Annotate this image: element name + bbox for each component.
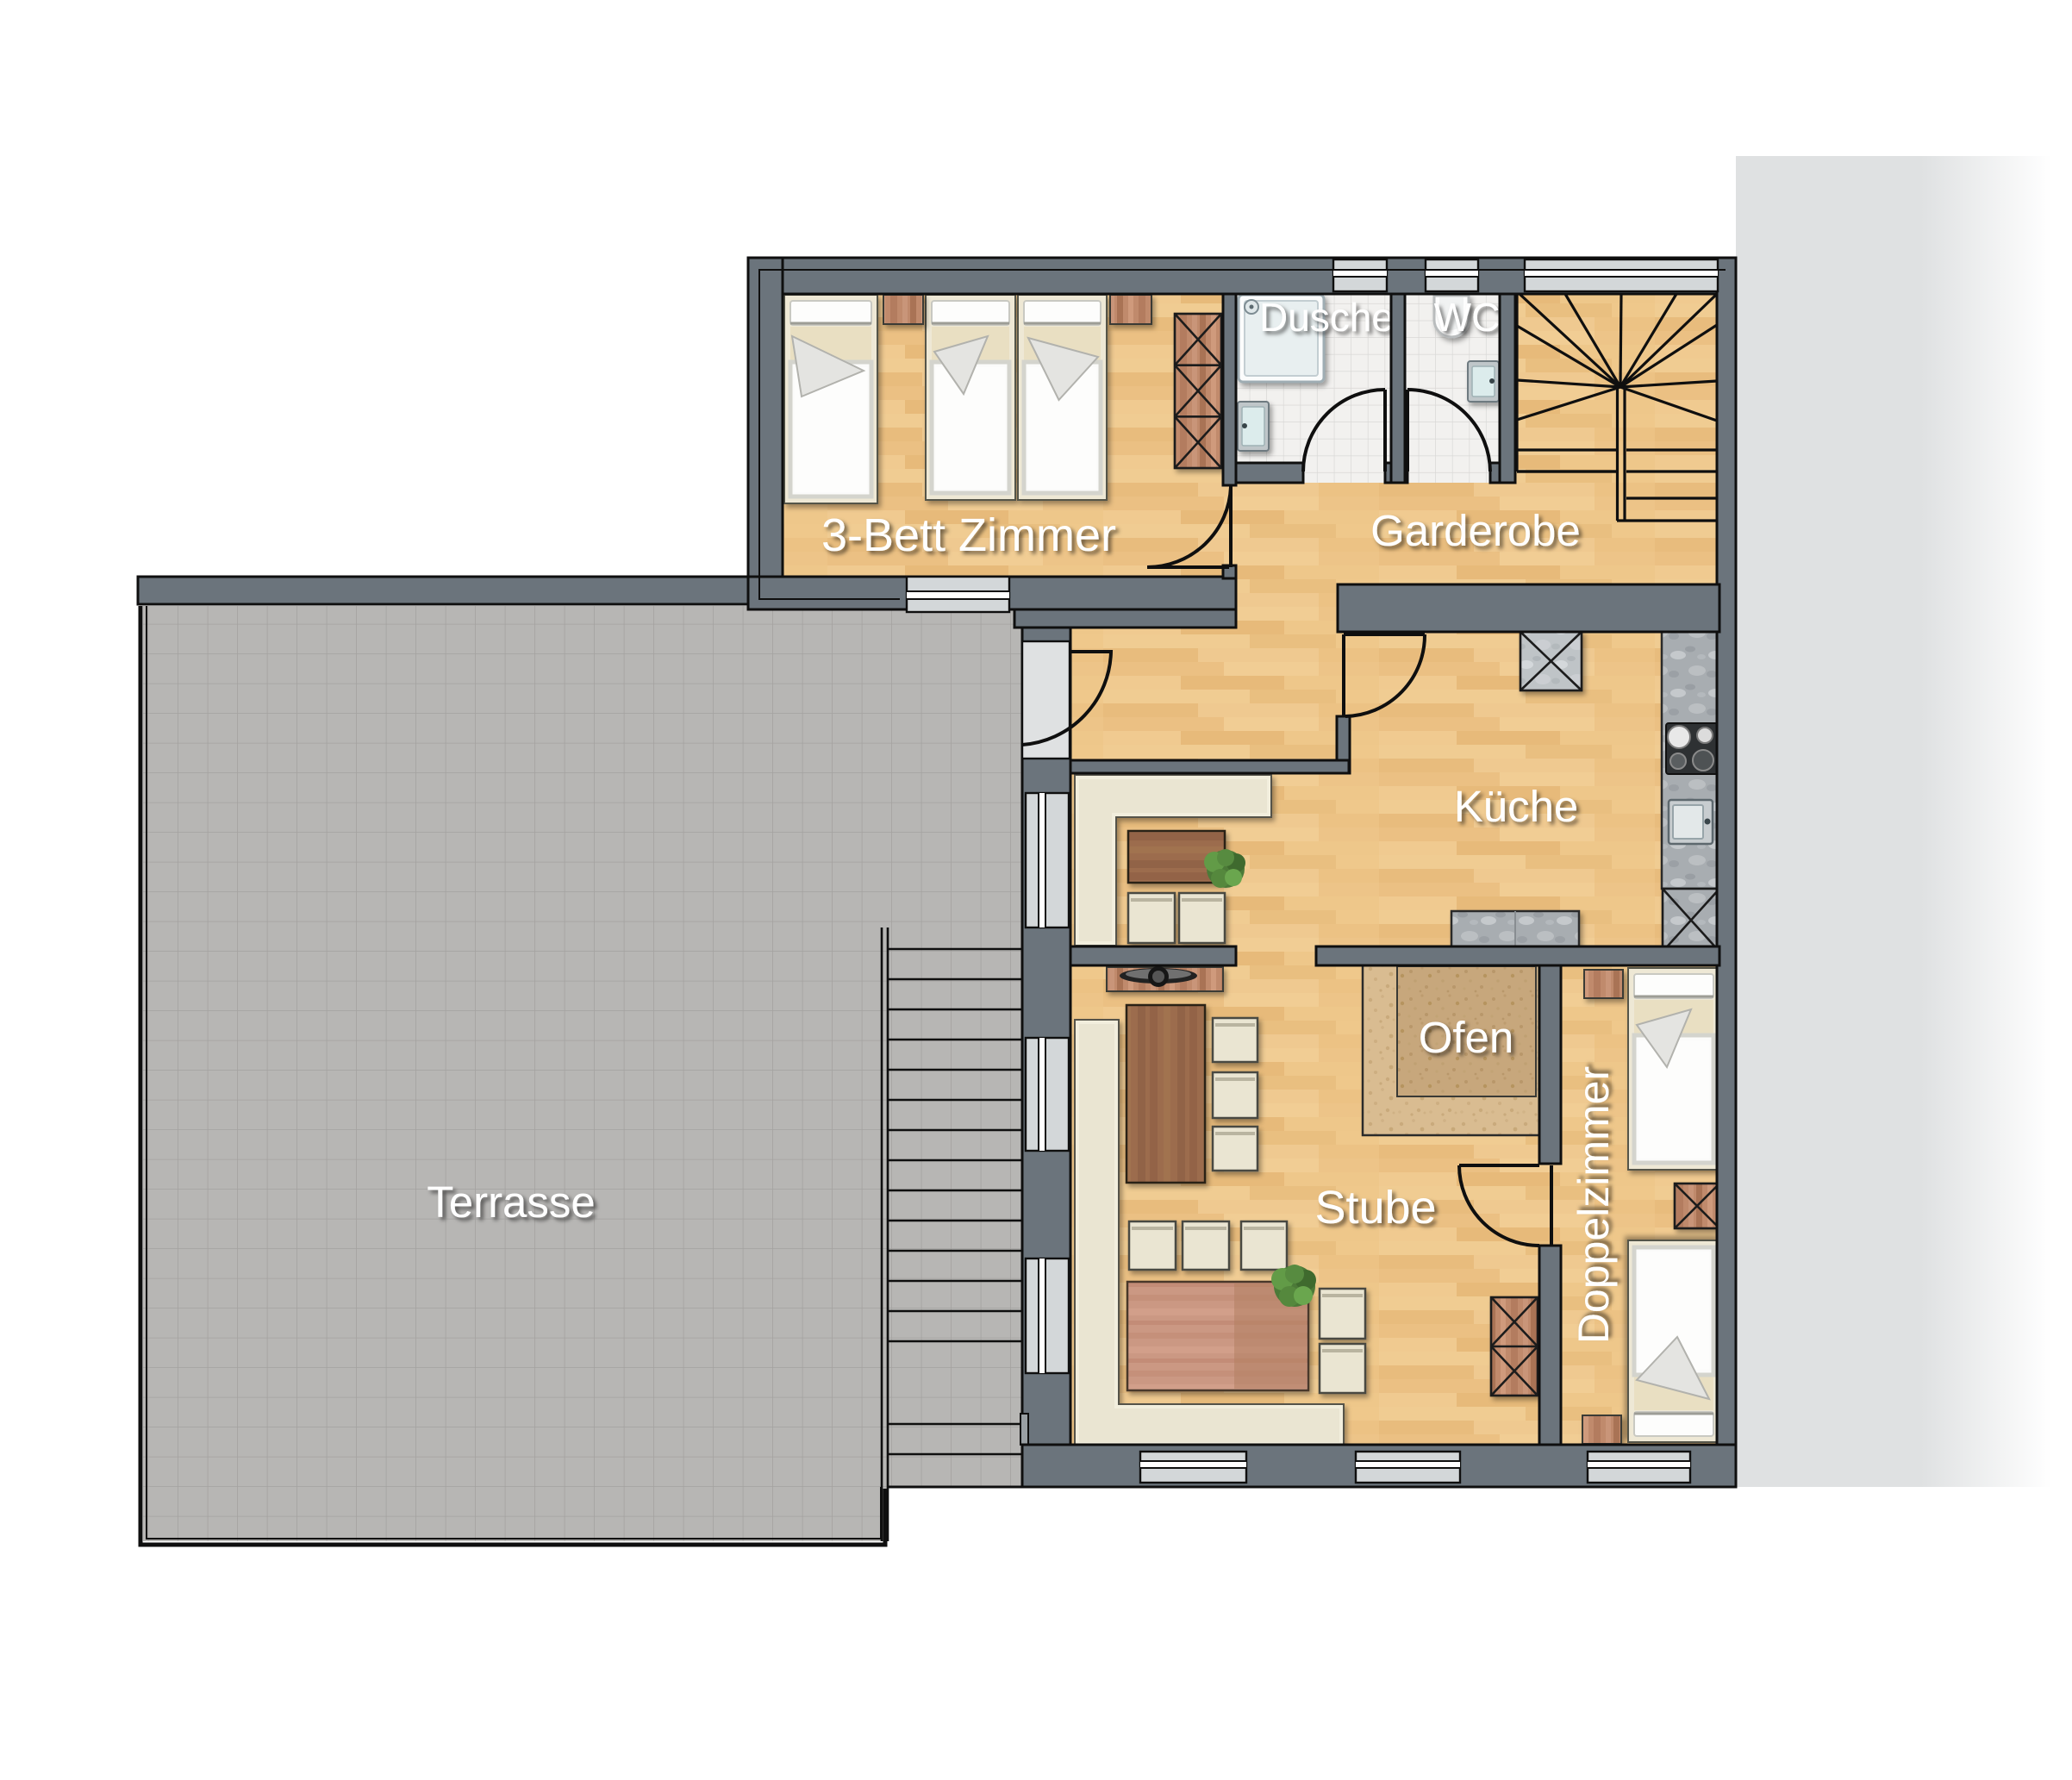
svg-text:Dusche: Dusche [1259,295,1394,340]
svg-text:3-Bett Zimmer: 3-Bett Zimmer [821,509,1116,561]
svg-text:Küche: Küche [1454,782,1579,831]
svg-text:Stube: Stube [1314,1182,1436,1234]
svg-text:Garderobe: Garderobe [1370,506,1581,555]
svg-text:Doppelzimmer: Doppelzimmer [1570,1066,1618,1344]
svg-text:WC: WC [1434,295,1501,340]
svg-text:Terrasse: Terrasse [427,1177,596,1227]
svg-text:Ofen: Ofen [1419,1013,1514,1062]
